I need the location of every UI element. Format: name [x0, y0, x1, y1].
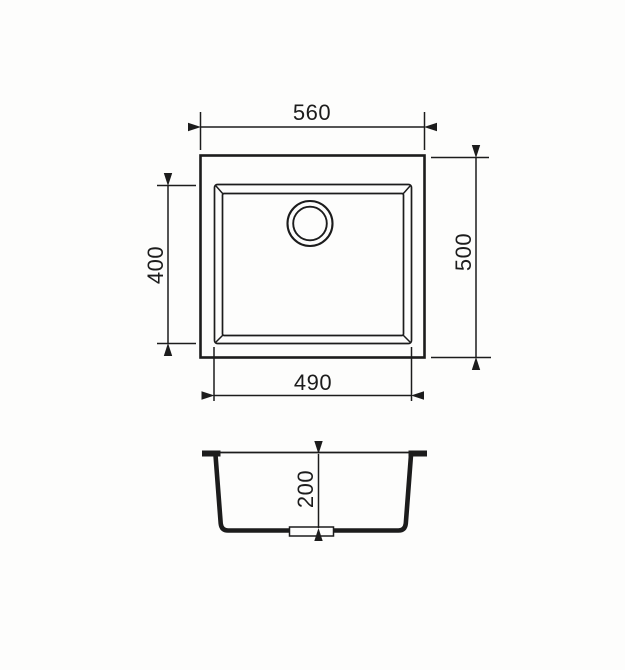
bowl-inner-edge — [223, 194, 404, 336]
drawing-svg: 560 500 400 490 — [0, 0, 625, 670]
dimension-overall-depth: 500 — [431, 158, 491, 358]
section-drain-outlet — [290, 527, 334, 536]
top-view — [201, 156, 425, 358]
dimension-label-bowl-height: 200 — [293, 470, 318, 508]
drain-opening — [288, 201, 333, 246]
dimension-label-bowl-depth: 400 — [143, 246, 168, 284]
dimension-label-bowl-width: 490 — [294, 370, 332, 395]
drain-inner-ring — [293, 207, 327, 241]
dimension-bowl-height: 200 — [293, 454, 319, 528]
dimension-label-overall-width: 560 — [293, 100, 331, 125]
bowl-outer-edge — [215, 185, 412, 344]
dimension-overall-width: 560 — [201, 100, 425, 150]
sink-outer-rim — [201, 156, 425, 358]
dimension-bowl-depth: 400 — [143, 186, 196, 344]
sink-dimension-drawing: 560 500 400 490 — [0, 0, 625, 670]
bowl-corner-bevels — [216, 186, 410, 342]
drain-outer-ring — [288, 201, 333, 246]
dimension-bowl-width: 490 — [214, 347, 412, 401]
dimension-label-overall-depth: 500 — [451, 233, 476, 271]
